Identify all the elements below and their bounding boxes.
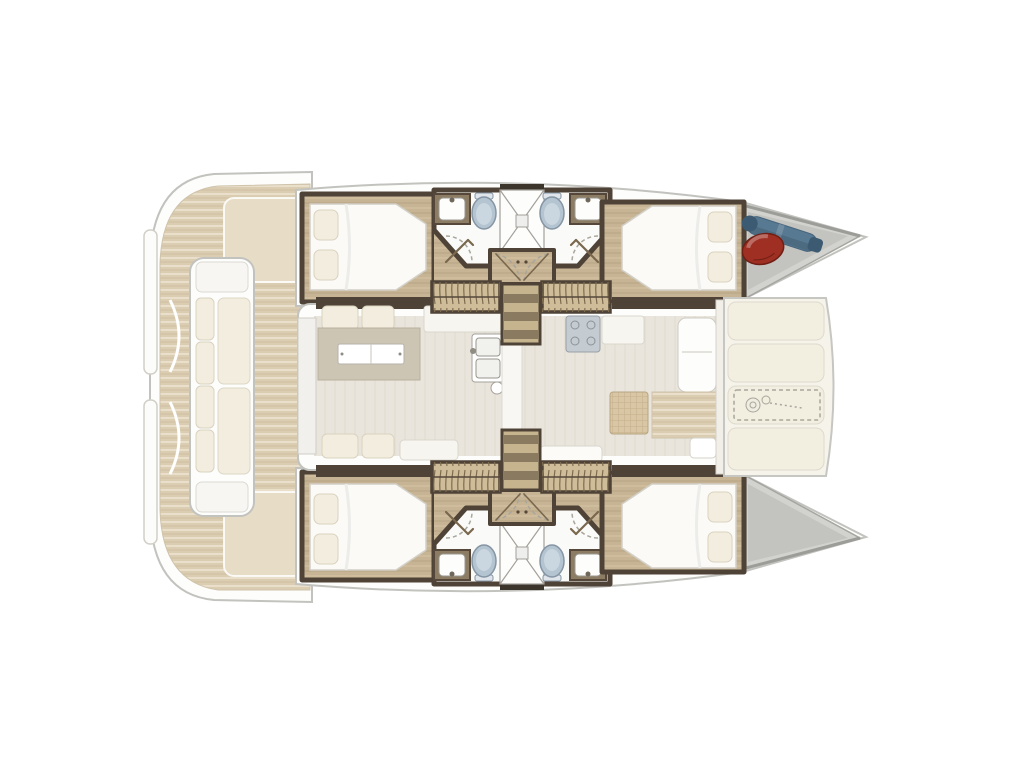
sofa-end-table — [196, 262, 248, 292]
galley-counter — [602, 316, 644, 344]
cockpit-lounge-sofa — [190, 258, 254, 516]
salon-sofa-cushion — [362, 306, 394, 330]
teak-floor-mat — [652, 392, 716, 438]
sink-basin — [476, 338, 500, 356]
table-latch — [399, 353, 402, 356]
sunpad-cushion — [728, 302, 824, 340]
faucet — [470, 348, 476, 354]
sofa-seat-cushion — [218, 298, 250, 384]
foredeck-lounge — [716, 298, 834, 476]
salon-sofa-cushion — [322, 434, 358, 458]
salon-fwd-bulkhead — [316, 465, 432, 477]
stove-top — [566, 316, 600, 352]
transom-step — [144, 400, 157, 544]
sofa-backrest-cushion — [196, 386, 214, 428]
catamaran-floor-plan-page — [0, 0, 1024, 768]
sink-basin — [476, 359, 500, 378]
fwd-counter — [400, 440, 458, 460]
sunpad-cushion — [728, 386, 824, 424]
sofa-backrest-cushion — [196, 342, 214, 384]
nav-seat — [678, 318, 716, 392]
sofa-backrest-cushion — [196, 298, 214, 340]
windlass-drum-icon — [746, 398, 760, 412]
sofa-seat-cushion — [218, 388, 250, 474]
table-latch — [341, 353, 344, 356]
catamaran-floor-plan — [0, 0, 1024, 768]
kettle — [491, 382, 503, 394]
sofa-end-table — [196, 482, 248, 512]
sunpad-cushion — [728, 344, 824, 382]
salon-sofa-cushion — [362, 434, 394, 458]
stove — [566, 316, 600, 352]
sliding-door — [298, 318, 316, 454]
salon-sofa-cushion — [322, 306, 358, 330]
dinette — [318, 328, 420, 380]
sofa-backrest-cushion — [196, 430, 214, 472]
storage-box — [690, 438, 716, 458]
woven-floor-mat — [610, 392, 648, 434]
sunpad-cushion — [728, 428, 824, 470]
transom-step — [144, 230, 157, 374]
fwd-seat — [540, 446, 602, 462]
aft-cockpit — [144, 172, 312, 602]
